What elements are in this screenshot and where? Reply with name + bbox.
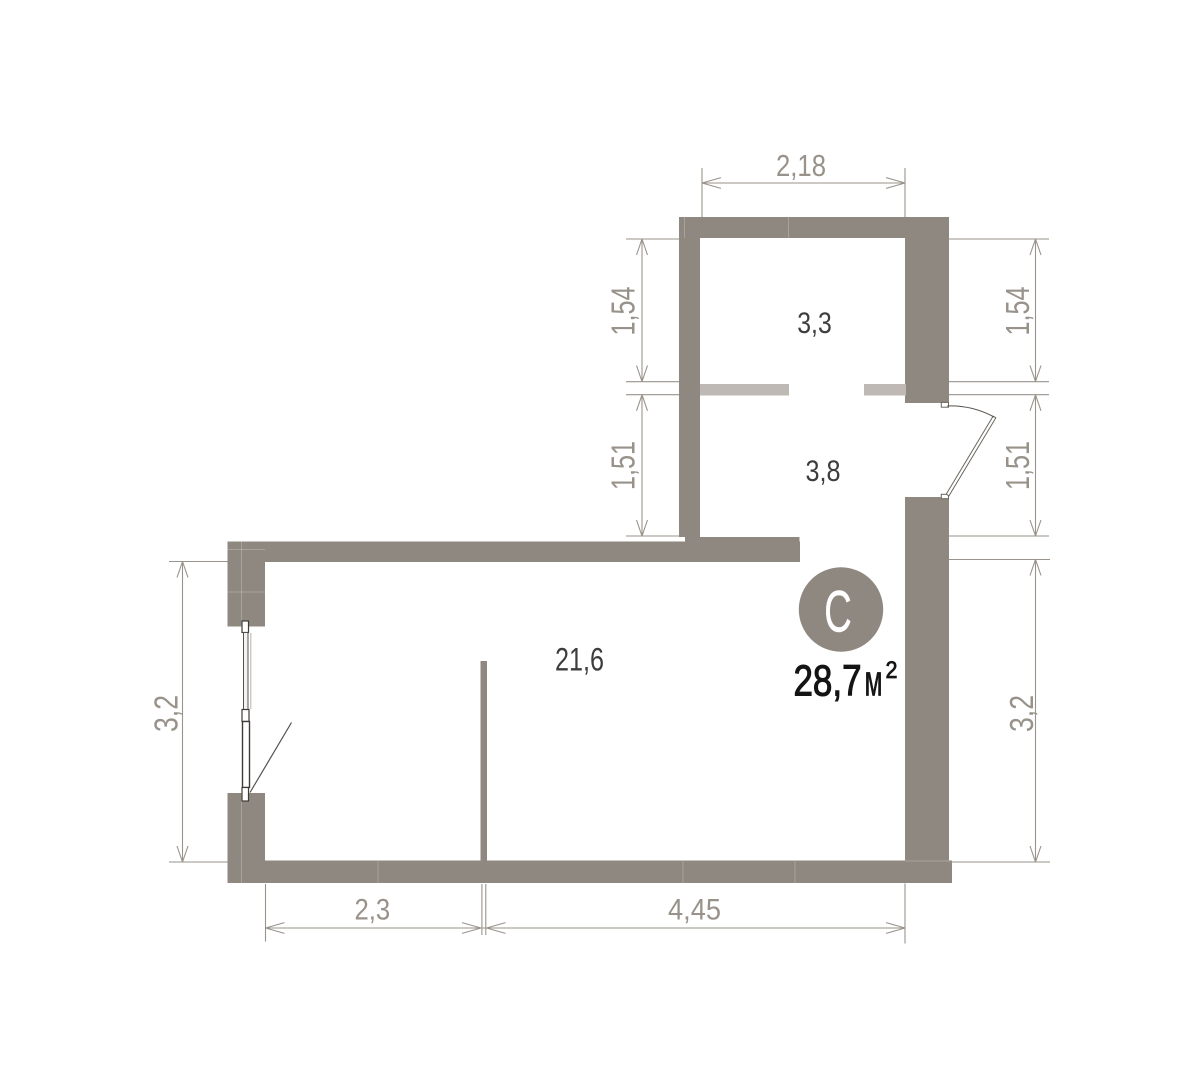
svg-text:21,6: 21,6: [555, 642, 604, 678]
svg-text:1,51: 1,51: [999, 441, 1036, 490]
svg-text:4,45: 4,45: [668, 893, 721, 926]
svg-text:1,51: 1,51: [605, 441, 642, 490]
svg-text:м: м: [865, 658, 883, 706]
svg-text:28,7: 28,7: [794, 658, 862, 706]
svg-text:3,2: 3,2: [1003, 695, 1040, 732]
svg-text:3,8: 3,8: [806, 455, 841, 488]
svg-text:2,18: 2,18: [776, 148, 826, 183]
svg-text:3,2: 3,2: [148, 695, 185, 732]
svg-text:C: C: [824, 580, 852, 645]
svg-text:2: 2: [886, 657, 898, 684]
svg-text:2,3: 2,3: [354, 893, 390, 926]
svg-text:3,3: 3,3: [797, 307, 832, 340]
svg-text:1,54: 1,54: [605, 287, 642, 336]
svg-text:1,54: 1,54: [999, 287, 1036, 336]
